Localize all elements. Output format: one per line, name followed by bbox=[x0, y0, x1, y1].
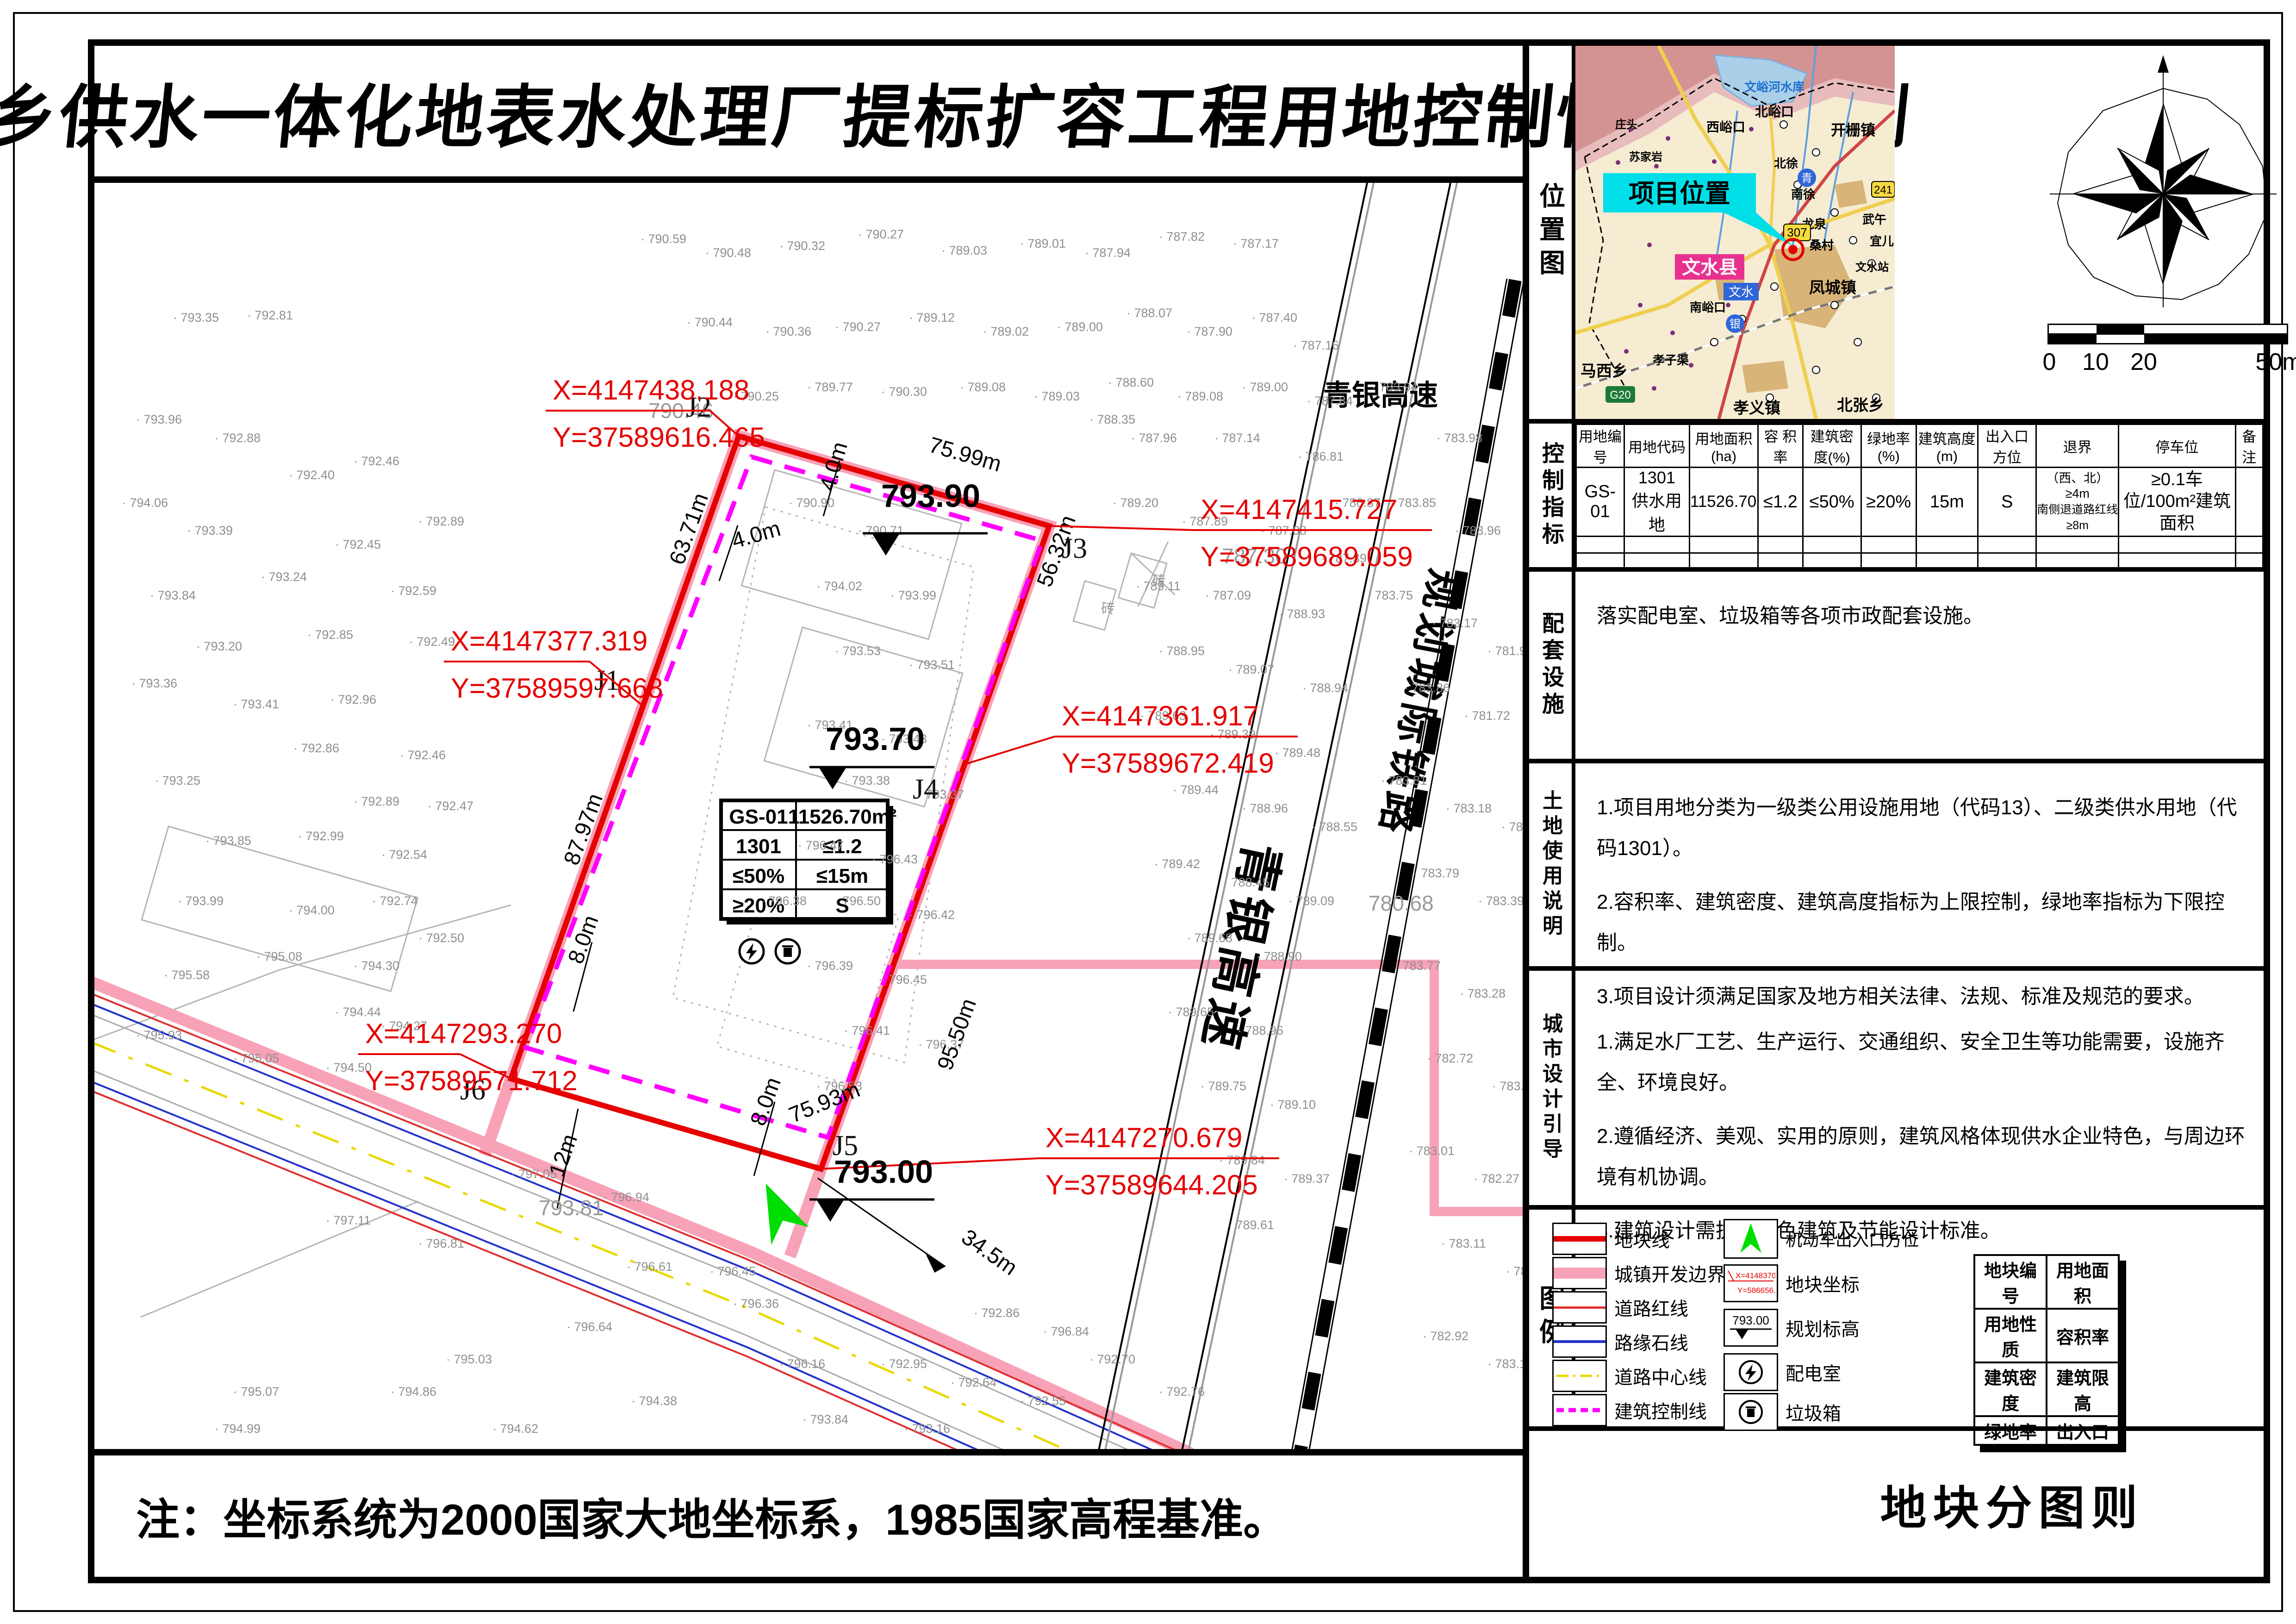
spot-elevation: · 783.08 bbox=[1506, 1264, 1523, 1278]
village-circle bbox=[1812, 149, 1820, 156]
section-facilities-label: 配套设施 bbox=[1529, 572, 1575, 759]
coordinate-y-label: Y=37589616.465 bbox=[553, 422, 765, 453]
spot-elevation: · 787.17 bbox=[1233, 237, 1279, 250]
spot-elevation: · 783.79 bbox=[1413, 866, 1459, 880]
spot-elevation: · 792.96 bbox=[330, 693, 376, 706]
urban-design-item: 1.满足水厂工艺、生产运行、交通组织、安全卫生等功能需要，设施齐全、环境良好。 bbox=[1597, 1022, 2245, 1103]
spot-elevation: · 794.02 bbox=[816, 579, 862, 593]
spot-elevation: · 787.96 bbox=[1131, 431, 1177, 445]
shield-241: 241 bbox=[1874, 184, 1892, 196]
col-header: 出入口方位 bbox=[1978, 425, 2036, 468]
spot-elevation: · 789.09 bbox=[1288, 894, 1334, 908]
place-label: 孝义镇 bbox=[1733, 400, 1780, 417]
spot-elevation: · 788.45 bbox=[1224, 875, 1269, 889]
col-header: 用地代码 bbox=[1624, 425, 1689, 468]
planned-elevation-triangle bbox=[816, 1199, 844, 1222]
spot-elevation: · 792.70 bbox=[1089, 1352, 1135, 1366]
section-urban-design-label: 城市设计引导 bbox=[1529, 971, 1575, 1205]
spot-elevation: · 783.77 bbox=[1395, 959, 1441, 973]
sidebar: 位置图 bbox=[1523, 46, 2264, 1577]
spot-elevation: · 783.96 bbox=[1455, 524, 1501, 537]
spot-elevation: · 795.93 bbox=[136, 1028, 182, 1042]
spot-elevation: · 792.86 bbox=[974, 1306, 1020, 1320]
spot-elevation: · 796.47 bbox=[798, 838, 844, 852]
village-dot bbox=[1616, 160, 1620, 165]
spot-elevation: · 796.84 bbox=[1043, 1324, 1089, 1338]
spot-elevation: · 795.58 bbox=[164, 968, 210, 982]
scale-bar: 0 10 20 50m bbox=[2047, 324, 2288, 376]
spot-elevation: · 788.94 bbox=[1302, 681, 1348, 695]
legend-planned-elevation: 793.00 规划标高 bbox=[1724, 1309, 1860, 1347]
place-label: 桑村 bbox=[1810, 238, 1834, 252]
legend-parcel-coordinate: X=4148370.882 Y=586656.629 地块坐标 bbox=[1724, 1264, 1860, 1302]
spot-elevation: · 796.50 bbox=[835, 894, 881, 908]
location-map: 庄头苏家岩北峪口西峪口文峪河水库开栅镇北徐南徐龙泉桑村武午宜儿凤城镇文水站南峪口… bbox=[1575, 46, 1895, 419]
spot-elevation: · 789.65 bbox=[1168, 1005, 1214, 1019]
spot-elevation: · 782.88 bbox=[1501, 820, 1523, 834]
spot-elevation: · 787.94 bbox=[1085, 246, 1131, 260]
col-header: 备注 bbox=[2235, 425, 2263, 468]
village-dot bbox=[1666, 136, 1670, 141]
spot-elevation: · 792.64 bbox=[951, 1375, 996, 1389]
cell-remark bbox=[2235, 468, 2263, 537]
spot-elevation: · 796.94 bbox=[604, 1190, 649, 1204]
spot-elevation: · 788.96 bbox=[1242, 801, 1288, 815]
spot-elevation: · 793.38 bbox=[844, 774, 890, 787]
coordinate-system-note: 注：坐标系统为2000国家大地坐标系，1985国家高程基准。 bbox=[136, 1485, 1287, 1548]
spot-elevation: · 783.17 bbox=[1432, 616, 1478, 630]
spot-elevation: · 790.59 bbox=[641, 232, 686, 246]
legend-building-control-line: 建筑控制线 bbox=[1552, 1394, 1707, 1426]
section-location-label: 位置图 bbox=[1529, 46, 1575, 419]
coord-sample-x: X=4148370.882 bbox=[1736, 1271, 1775, 1280]
coordinate-y-label: Y=37589644.205 bbox=[1045, 1169, 1258, 1200]
spot-elevation: · 789.08 bbox=[960, 380, 1006, 394]
spot-elevation: · 788.60 bbox=[1108, 375, 1154, 389]
section-facilities: 配套设施 落实配电室、垃圾箱等各项市政配套设施。 bbox=[1529, 572, 2264, 763]
spot-elevation: · 792.50 bbox=[418, 931, 464, 945]
place-label: 庄头 bbox=[1615, 118, 1637, 131]
spot-elevation: · 794.62 bbox=[492, 1422, 538, 1436]
spot-elevation: · 793.51 bbox=[909, 658, 955, 672]
place-label: 文水站 bbox=[1855, 261, 1889, 274]
parcel-height: ≤15m bbox=[816, 865, 868, 887]
spot-elevation: · 788.95 bbox=[1159, 644, 1205, 658]
spot-elevation: · 792.88 bbox=[215, 431, 261, 445]
spot-elevation: · 794.06 bbox=[122, 496, 168, 510]
place-label: 南峪口 bbox=[1690, 300, 1726, 314]
place-label: 宜儿 bbox=[1870, 234, 1894, 248]
village-dot bbox=[1712, 159, 1717, 164]
village-circle bbox=[1711, 338, 1718, 346]
spot-elevation: · 782.92 bbox=[1423, 1329, 1468, 1343]
spot-elevation: · 793.35 bbox=[173, 311, 219, 325]
section-land-use-label: 土地使用说明 bbox=[1529, 763, 1575, 966]
shield-307: 307 bbox=[1787, 225, 1807, 239]
spot-elevation: · 787.90 bbox=[1187, 325, 1232, 338]
section-land-use: 土地使用说明 1.项目用地分类为一级类公用设施用地（代码13）、二级类供水用地（… bbox=[1529, 763, 2264, 971]
spot-elevation: · 793.99 bbox=[178, 894, 224, 908]
spot-elevation: · 787.14 bbox=[1214, 431, 1260, 445]
village-circle bbox=[1831, 209, 1838, 216]
spot-elevation: · 792.89 bbox=[354, 794, 399, 808]
spot-elevation: · 793.84 bbox=[150, 588, 196, 602]
spot-elevation: · 789.84 bbox=[1219, 1153, 1265, 1167]
spot-elevation: · 788.96 bbox=[1238, 1024, 1283, 1037]
col-header: 用地编号 bbox=[1576, 425, 1624, 468]
boundary-point-label: J4 bbox=[913, 774, 938, 805]
railway-label: 规划城际铁路 bbox=[1371, 565, 1468, 841]
coordinate-y-label: Y=37589597.668 bbox=[451, 673, 663, 704]
coordinate-x-label: X=4147415.727 bbox=[1201, 494, 1397, 525]
plot-title: 地块分图则 bbox=[1880, 1470, 2144, 1537]
shield-g20: G20 bbox=[1610, 389, 1630, 401]
parcel-info-legend-table: 地块编号用地面积 用地性质容积率 建筑密度建筑限高 绿地率出入口 bbox=[1973, 1254, 2120, 1446]
spot-elevation: · 783.18 bbox=[1446, 801, 1492, 815]
spot-elevation: · 796.39 bbox=[807, 959, 853, 973]
planned-elevation-label: 793.70 bbox=[826, 721, 925, 757]
title-band: 文水县城乡供水一体化地表水处理厂提标扩容工程用地控制性详细规划 bbox=[94, 46, 1523, 183]
village-circle bbox=[1831, 301, 1838, 309]
project-marker bbox=[1788, 245, 1798, 254]
cell-area: 11526.70m² bbox=[1689, 468, 1758, 537]
legend-road-center-line: 道路中心线 bbox=[1552, 1360, 1707, 1392]
spot-elevation: · 789.11 bbox=[1136, 579, 1181, 593]
note-band: 注：坐标系统为2000国家大地坐标系，1985国家高程基准。 bbox=[94, 1449, 1523, 1577]
spot-elevation: · 794.00 bbox=[289, 903, 335, 917]
elev-sample: 793.00 bbox=[1732, 1313, 1769, 1327]
legend-development-boundary: 城镇开发边界线 bbox=[1552, 1257, 1744, 1289]
parcel-code: 1301 bbox=[736, 835, 781, 858]
place-label: 凤城镇 bbox=[1809, 279, 1856, 297]
dimension-label: 12m bbox=[545, 1131, 583, 1180]
scale-ticks: 0 10 20 50m bbox=[2047, 348, 2288, 376]
spot-elevation: · 783.39 bbox=[1478, 894, 1523, 908]
village-dot bbox=[1638, 303, 1643, 307]
spot-elevation: · 789.37 bbox=[1284, 1172, 1330, 1186]
spot-elevation: · 789.44 bbox=[1173, 783, 1219, 797]
spot-elevation: · 793.99 bbox=[890, 588, 936, 602]
spot-elevation: · 789.77 bbox=[807, 380, 853, 394]
col-header: 建筑密度(%) bbox=[1803, 425, 1861, 468]
spot-elevation-large: 780.68 bbox=[1369, 891, 1434, 915]
col-header: 用地面积(ha) bbox=[1689, 425, 1758, 468]
spot-elevation: · 783.94 bbox=[1372, 380, 1418, 394]
legend-trash-bin: 垃圾箱 bbox=[1724, 1393, 1841, 1431]
spot-elevation: · 789.10 bbox=[1270, 1098, 1316, 1112]
cell-green: ≥20% bbox=[1861, 468, 1916, 537]
site-plan-map: 砖 砖 bbox=[94, 183, 1523, 1449]
boundary-point-label: J3 bbox=[1062, 533, 1087, 564]
cell-entry: S bbox=[1978, 468, 2036, 537]
place-label: 武午 bbox=[1862, 212, 1886, 226]
spot-elevation: · 790.44 bbox=[687, 315, 733, 329]
place-label: 北徐 bbox=[1774, 156, 1798, 170]
col-header: 绿地率(%) bbox=[1861, 425, 1916, 468]
village-dot bbox=[1652, 386, 1656, 391]
spot-elevation: · 782.27 bbox=[1474, 1172, 1519, 1186]
spot-elevation: · 795.07 bbox=[233, 1385, 279, 1399]
spot-elevation: · 796.61 bbox=[627, 1260, 672, 1274]
spot-elevation: · 783.11 bbox=[1441, 1237, 1486, 1250]
legend-parcel-line: 地块线 bbox=[1552, 1223, 1670, 1255]
dimension-label: 95.50m bbox=[933, 995, 982, 1074]
land-use-item: 1.项目用地分类为一级类公用设施用地（代码13）、二级类供水用地（代码1301）… bbox=[1597, 787, 2245, 869]
trash-bin-icon bbox=[776, 939, 800, 963]
coordinate-x-label: X=4147270.679 bbox=[1045, 1122, 1242, 1153]
spot-elevation: · 783.81 bbox=[1381, 774, 1427, 787]
spot-elevation: · 796.16 bbox=[779, 1357, 825, 1371]
spot-elevation: · 788.90 bbox=[1256, 949, 1302, 963]
coord-sample-y: Y=586656.629 bbox=[1737, 1286, 1775, 1295]
compass-rose bbox=[2043, 55, 2284, 314]
spot-elevation: · 790.90 bbox=[789, 496, 834, 510]
spot-elevation: · 790.48 bbox=[705, 246, 751, 260]
village-dot bbox=[1749, 127, 1754, 131]
spot-elevation: · 796.64 bbox=[566, 1320, 612, 1334]
coordinate-x-label: X=4147293.270 bbox=[365, 1018, 562, 1049]
section-location: 位置图 bbox=[1529, 46, 2264, 424]
planned-elevation-label: 793.90 bbox=[881, 478, 980, 514]
spot-elevation: · 782.72 bbox=[1427, 1051, 1473, 1065]
spot-elevation: · 792.46 bbox=[354, 454, 399, 468]
spot-elevation: · 783.13 bbox=[1492, 1079, 1523, 1093]
spot-elevation: · 789.01 bbox=[1020, 237, 1066, 250]
place-label: 文峪河水库 bbox=[1744, 80, 1804, 94]
col-header: 退界 bbox=[2036, 425, 2119, 468]
spot-elevation: · 789.08 bbox=[1177, 389, 1223, 403]
spot-elevation: · 793.53 bbox=[835, 644, 881, 658]
spot-elevation: · 792.49 bbox=[409, 635, 455, 649]
spot-elevation: · 783.28 bbox=[1460, 987, 1506, 1000]
spot-elevation: · 796.42 bbox=[909, 908, 955, 922]
spot-elevation: · 788.93 bbox=[1279, 607, 1325, 621]
spot-elevation: · 783.86 bbox=[1404, 681, 1450, 695]
spot-elevation: · 796.43 bbox=[872, 852, 918, 866]
spot-elevation: · 790.27 bbox=[858, 227, 904, 241]
spot-elevation: · 781.72 bbox=[1464, 709, 1510, 723]
parcel-area: 11526.70m² bbox=[788, 806, 897, 828]
spot-elevation: · 789.03 bbox=[1034, 389, 1080, 403]
dimension-label: 4.0m bbox=[729, 516, 783, 553]
spot-elevation: · 781.92 bbox=[1487, 644, 1523, 658]
shield-qing: 青 bbox=[1801, 172, 1812, 185]
cell-retreat: （西、北）≥4m南侧退道路红线≥8m bbox=[2036, 468, 2119, 537]
spot-elevation: · 789.61 bbox=[1228, 1218, 1274, 1232]
parcel-density: ≤50% bbox=[733, 865, 784, 887]
place-label: 孝子渠 bbox=[1653, 353, 1689, 367]
place-label: 西峪口 bbox=[1706, 120, 1745, 134]
village-dot bbox=[1654, 164, 1659, 169]
village-circle bbox=[1771, 283, 1778, 290]
spot-elevation: · 796.81 bbox=[418, 1237, 464, 1250]
col-header: 容 积 率 bbox=[1758, 425, 1803, 468]
village-dot bbox=[1647, 243, 1652, 247]
cell-far: ≤1.2 bbox=[1758, 468, 1803, 537]
section-control-indicators: 控制指标 用地编号 用地代码 用地面积(ha) 容 积 率 建筑密度(%) 绿地… bbox=[1529, 424, 2264, 572]
place-label: 马西乡 bbox=[1580, 362, 1628, 380]
spot-elevation: · 789.00 bbox=[1242, 380, 1288, 394]
coordinate-x-label: X=4147377.319 bbox=[451, 625, 647, 656]
planned-elevation-label: 793.00 bbox=[834, 1154, 933, 1190]
spot-elevation: · 796.41 bbox=[844, 1024, 890, 1037]
spot-elevation: · 792.95 bbox=[881, 1357, 927, 1371]
spot-elevation: · 796.45 bbox=[710, 1264, 756, 1278]
spot-elevation: · 783.98 bbox=[1437, 431, 1482, 445]
spot-elevation: · 795.08 bbox=[256, 949, 302, 963]
spot-elevation: · 792.99 bbox=[298, 829, 344, 843]
spot-elevation: · 783.75 bbox=[1367, 588, 1413, 602]
coordinate-x-label: X=4147438.188 bbox=[553, 375, 749, 406]
spot-elevation: · 796.36 bbox=[733, 1297, 779, 1311]
spot-elevation: · 795.05 bbox=[233, 1051, 279, 1065]
spot-elevation: · 792.86 bbox=[293, 741, 339, 755]
legend-curb-line: 路缘石线 bbox=[1552, 1325, 1688, 1358]
section-urban-design: 城市设计引导 1.满足水厂工艺、生产运行、交通组织、安全卫生等功能需要，设施齐全… bbox=[1529, 971, 2264, 1210]
spot-elevation: · 793.24 bbox=[261, 570, 307, 584]
town-label: 文水 bbox=[1729, 285, 1754, 299]
spot-elevation: · 788.35 bbox=[1089, 412, 1135, 426]
spot-elevation: · 793.39 bbox=[187, 524, 233, 537]
spot-elevation: · 787.84 bbox=[1307, 394, 1353, 408]
spot-elevation: · 790.30 bbox=[881, 385, 927, 399]
coordinate-y-label: Y=37589689.059 bbox=[1201, 541, 1413, 572]
section-plot-title: 地块分图则 bbox=[1529, 1431, 2264, 1577]
spot-elevation: · 792.59 bbox=[391, 584, 436, 598]
col-header: 建筑高度(m) bbox=[1916, 425, 1978, 468]
legend-power-room: 配电室 bbox=[1724, 1353, 1841, 1391]
spot-elevation: · 793.16 bbox=[904, 1422, 950, 1436]
place-label: 北峪口 bbox=[1755, 105, 1794, 119]
col-header: 停车位 bbox=[2119, 425, 2235, 468]
control-indicators-table: 用地编号 用地代码 用地面积(ha) 容 积 率 建筑密度(%) 绿地率(%) … bbox=[1575, 424, 2264, 572]
spot-elevation: · 788.55 bbox=[1312, 820, 1357, 834]
spot-elevation: · 789.00 bbox=[1057, 320, 1103, 334]
spot-elevation: · 783.01 bbox=[1409, 1144, 1455, 1158]
village-circle bbox=[1812, 366, 1820, 374]
parcel-id: GS-01 bbox=[729, 806, 788, 828]
cell-height: 15m bbox=[1916, 468, 1978, 537]
spot-elevation: · 796.38 bbox=[761, 894, 807, 908]
cell-density: ≤50% bbox=[1803, 468, 1861, 537]
spot-elevation: · 792.40 bbox=[289, 468, 335, 482]
spot-elevation: · 792.74 bbox=[372, 894, 418, 908]
village-dot bbox=[1624, 349, 1629, 354]
legend-road-red-line: 道路红线 bbox=[1552, 1291, 1688, 1324]
spot-elevation: · 789.75 bbox=[1201, 1079, 1246, 1093]
spot-elevation: · 788.07 bbox=[1126, 306, 1172, 320]
location-map-area: 庄头苏家岩北峪口西峪口文峪河水库开栅镇北徐南徐龙泉桑村武午宜儿凤城镇文水站南峪口… bbox=[1575, 46, 2264, 419]
green-arrow-icon bbox=[1740, 1223, 1761, 1253]
land-use-item: 2.容积率、建筑密度、建筑高度指标为上限控制，绿地率指标为下限控制。 bbox=[1597, 882, 2245, 963]
spot-elevation: · 787.40 bbox=[1251, 311, 1297, 325]
spot-elevation: · 793.41 bbox=[233, 697, 279, 711]
spot-elevation: · 789.02 bbox=[983, 325, 1029, 338]
spot-elevation: · 793.84 bbox=[803, 1412, 848, 1426]
coordinate-y-label: Y=37589672.419 bbox=[1062, 748, 1274, 779]
spot-elevation: · 792.81 bbox=[247, 308, 293, 322]
spot-elevation: · 790.32 bbox=[779, 239, 825, 253]
spot-elevation-large: 793.81 bbox=[539, 1196, 604, 1220]
cell-parking: ≥0.1车位/100m²建筑面积 bbox=[2119, 468, 2235, 537]
spot-elevation: · 795.03 bbox=[446, 1352, 492, 1366]
brick-building-label: 砖 bbox=[1101, 601, 1115, 617]
spot-elevation: · 792.89 bbox=[418, 514, 464, 528]
spot-elevation: · 789.68 bbox=[1187, 931, 1232, 945]
spot-elevation: · 792.76 bbox=[1159, 1385, 1205, 1399]
spot-elevation: · 789.42 bbox=[1154, 857, 1200, 871]
spot-elevation: · 792.54 bbox=[381, 848, 427, 862]
county-label: 文水县 bbox=[1682, 257, 1737, 278]
cell-parcel-id: GS-01 bbox=[1576, 468, 1624, 537]
dimension-label: 75.99m bbox=[926, 433, 1004, 477]
coordinate-x-label: X=4147361.917 bbox=[1062, 700, 1258, 731]
spot-elevation: · 786.81 bbox=[1298, 450, 1344, 463]
spot-elevation: · 790.27 bbox=[835, 320, 881, 334]
survey-drawing: 砖 砖 bbox=[94, 183, 1523, 1449]
north-arrow bbox=[2158, 55, 2169, 73]
place-label: 南徐 bbox=[1791, 187, 1815, 201]
urban-design-item: 2.遵循经济、美观、实用的原则，建筑风格体现供水企业特色，与周边环境有机协调。 bbox=[1597, 1116, 2245, 1198]
village-dot bbox=[1689, 363, 1693, 368]
spot-elevation: · 789.48 bbox=[1275, 746, 1320, 760]
legend-entrance-arrow: 机动车出入口方位 bbox=[1724, 1219, 1919, 1259]
place-label: 北张乡 bbox=[1837, 397, 1884, 414]
spot-elevation: · 790.36 bbox=[765, 325, 811, 338]
spot-elevation: · 787.16 bbox=[1293, 338, 1339, 352]
spot-elevation: · 794.30 bbox=[354, 959, 399, 973]
cell-land-code: 1301供水用地 bbox=[1624, 468, 1689, 537]
spot-elevation: · 793.20 bbox=[196, 639, 242, 653]
spot-elevation: · 793.25 bbox=[155, 774, 200, 787]
section-legend: 图例 地块线 城镇开发边界线 道路红线 路缘石线 bbox=[1529, 1210, 2264, 1431]
spot-elevation: · 789.07 bbox=[1228, 662, 1274, 676]
plan-sheet: 文水县城乡供水一体化地表水处理厂提标扩容工程用地控制性详细规划 砖 砖 bbox=[0, 0, 2296, 1624]
village-circle bbox=[1849, 237, 1857, 244]
spot-elevation: · 793.96 bbox=[136, 412, 182, 426]
spot-elevation: · 787.09 bbox=[1205, 588, 1251, 602]
village-dot bbox=[1726, 303, 1730, 307]
spot-elevation: · 789.03 bbox=[941, 244, 987, 257]
spot-elevation: · 789.20 bbox=[1113, 496, 1158, 510]
dimension-label: 8.0m bbox=[746, 1074, 786, 1129]
facilities-text: 落实配电室、垃圾箱等各项市政配套设施。 bbox=[1575, 572, 2264, 637]
village-circle bbox=[1854, 338, 1861, 346]
dimension-label: 34.5m bbox=[957, 1225, 1022, 1280]
spot-elevation: · 793.85 bbox=[205, 834, 251, 848]
spot-elevation: · 794.44 bbox=[335, 1005, 381, 1019]
section-control-label: 控制指标 bbox=[1529, 424, 1575, 567]
spot-elevation: · 792.45 bbox=[335, 537, 381, 551]
project-location-label: 项目位置 bbox=[1629, 179, 1730, 208]
spot-elevation: · 792.46 bbox=[400, 748, 446, 762]
spot-elevation: · 789.12 bbox=[909, 311, 955, 325]
spot-elevation: · 792.85 bbox=[307, 628, 353, 642]
spot-elevation: · 793.36 bbox=[131, 676, 177, 690]
spot-elevation: · 792.55 bbox=[1020, 1394, 1066, 1408]
spot-elevation: · 794.86 bbox=[391, 1385, 436, 1399]
coordinate-y-label: Y=37589571.712 bbox=[365, 1065, 578, 1096]
spot-elevation: · 792.47 bbox=[428, 799, 473, 813]
spot-elevation: · 783.10 bbox=[1487, 1357, 1523, 1371]
spot-elevation: · 797.11 bbox=[326, 1213, 371, 1227]
shield-yin: 银 bbox=[1730, 318, 1741, 331]
spot-elevation: · 794.38 bbox=[631, 1394, 677, 1408]
spot-elevation: · 796.45 bbox=[881, 973, 927, 987]
village-dot bbox=[1670, 331, 1675, 335]
village-circle bbox=[1780, 121, 1787, 128]
place-label: 开栅镇 bbox=[1831, 122, 1875, 138]
